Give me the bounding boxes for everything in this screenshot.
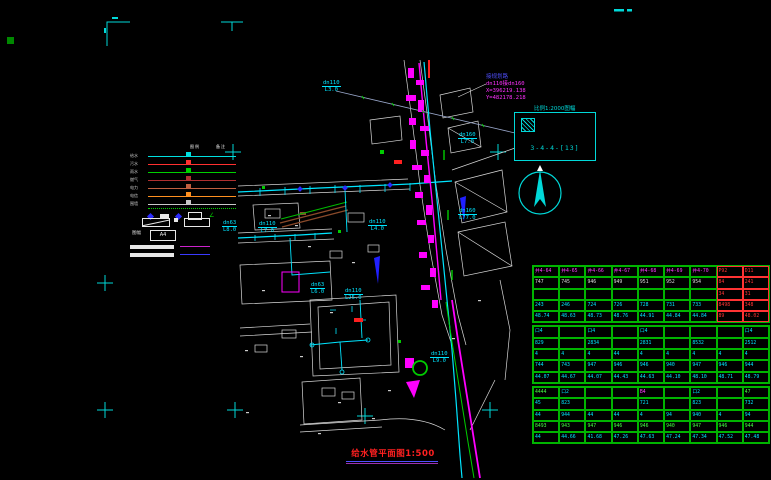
table-cell: 8493 [533, 421, 559, 432]
table-cell: 44 [533, 432, 559, 443]
table-cell: 井4-65 [559, 266, 585, 277]
table-cell: 2831 [638, 338, 664, 349]
legend-row-line [148, 188, 236, 189]
table-cell: 口4 [743, 326, 769, 337]
table-cell: 348 [743, 300, 769, 311]
table-cell: 944 [559, 410, 585, 421]
table-cell: 949 [612, 277, 638, 288]
square-icon [174, 218, 178, 222]
table-cell: 8498 [717, 300, 743, 311]
table-cell: 946 [612, 360, 638, 371]
table-cell [638, 289, 664, 300]
table-cell: 48.02 [743, 311, 769, 322]
rect-outline-icon [184, 218, 210, 227]
table-cell: 47.52 [717, 432, 743, 443]
table-cell: 246 [559, 300, 585, 311]
sheet-number: 3-4-4-[13] [515, 144, 595, 152]
sheet-number-box: 3-4-4-[13] [514, 112, 596, 161]
legend-row: 雨水 [128, 168, 240, 176]
legend-row: 燃气 [128, 176, 240, 184]
table-cell: 4 [638, 410, 664, 421]
annotation-coord-y: Y=482178.218 [486, 95, 526, 102]
pipe-label: dn110L4.0 [368, 219, 387, 232]
table-cell: 47.48 [743, 432, 769, 443]
table-cell: 823 [690, 398, 716, 409]
table-cell: 4 [533, 349, 559, 360]
scale-note: 比例1:2000图幅 [534, 104, 575, 112]
legend-bar [130, 245, 174, 249]
table-cell: 732 [743, 398, 769, 409]
table-cell [559, 289, 585, 300]
legend-row: 电信 [128, 192, 240, 200]
table-cell: 952 [664, 277, 690, 288]
connection-annotation: 接规划路 dn110接dn160 X=396219.138 Y=482178.2… [486, 74, 526, 102]
table-cell: 940 [690, 410, 716, 421]
legend-dotted-line [148, 208, 236, 209]
table-cell: 44.84 [690, 311, 716, 322]
table-cell: 41.68 [585, 432, 611, 443]
table-cell: 44.66 [559, 432, 585, 443]
table-cell: 44.67 [559, 372, 585, 383]
legend-row-label: 围墙 [130, 201, 138, 207]
table-cell: 946 [612, 421, 638, 432]
table-cell: 731 [664, 300, 690, 311]
green-band [281, 202, 347, 219]
table-cell: 4 [585, 349, 611, 360]
pipe-label: dn63L6.0 [310, 282, 325, 295]
table-cell: 4 [690, 349, 716, 360]
table-cell [690, 289, 716, 300]
table-cell [612, 326, 638, 337]
table-cell: 745 [559, 277, 585, 288]
pipe-label: dn160L77.0 [458, 208, 477, 221]
table-cell: 733 [690, 300, 716, 311]
table-cell: 45 [533, 398, 559, 409]
pipe-label: dn63L8.0 [222, 220, 237, 233]
table-cell: 47 [743, 387, 769, 398]
table-cell [612, 289, 638, 300]
table-cell: 947 [690, 421, 716, 432]
table-cell: 823 [559, 398, 585, 409]
annotation-road: 接规划路 [486, 74, 526, 81]
table-section: 口4口4口4口482928342831853225124444444444744… [532, 325, 770, 383]
table-cell: 34 [717, 289, 743, 300]
legend-row-label: 污水 [130, 161, 138, 167]
legend-row-label: 电力 [130, 185, 138, 191]
table-cell: 4 [559, 349, 585, 360]
pipe-label: dn110L3.0 [322, 80, 341, 93]
table-cell [664, 398, 690, 409]
table-cell [585, 289, 611, 300]
table-cell: 井4-64 [533, 266, 559, 277]
table-cell: 241 [743, 277, 769, 288]
table-cell: 井4-69 [664, 266, 690, 277]
table-cell [717, 387, 743, 398]
sewer-pipe-cluster [282, 63, 480, 478]
table-cell: 44.07 [585, 372, 611, 383]
table-cell [533, 289, 559, 300]
table-cell: 31 [743, 289, 769, 300]
table-cell [717, 398, 743, 409]
table-cell: 44.84 [664, 311, 690, 322]
table-cell: 947 [690, 360, 716, 371]
legend-row-line [148, 196, 236, 197]
table-cell: 48.63 [559, 311, 585, 322]
table-cell: 4 [638, 349, 664, 360]
table-cell: 8532 [690, 338, 716, 349]
cad-viewport: 图例 备注 给水污水雨水燃气电力电信围墙 ∠ 图幅 A4 接规划路 dn110接… [0, 0, 771, 480]
legend-row-line [148, 180, 236, 181]
table-cell: 2834 [585, 338, 611, 349]
table-cell: 48.74 [533, 311, 559, 322]
table-cell: D11 [743, 266, 769, 277]
pipe-label: dn110L9.0 [430, 351, 449, 364]
table-cell: 48.10 [690, 372, 716, 383]
table-cell: 744 [533, 360, 559, 371]
table-cell: 2512 [743, 338, 769, 349]
table-cell: 47.24 [664, 432, 690, 443]
legend-row-line [148, 164, 236, 165]
title-underline [346, 463, 438, 464]
table-cell: 井4-70 [690, 266, 716, 277]
north-arrow [519, 165, 561, 214]
table-cell [690, 326, 716, 337]
table-cell: 946 [638, 360, 664, 371]
plot-mark [7, 37, 14, 44]
table-cell: 947 [585, 360, 611, 371]
table-cell [664, 289, 690, 300]
table-cell: P92 [717, 266, 743, 277]
table-cell: 口4 [585, 326, 611, 337]
table-cell: 4444 [533, 387, 559, 398]
table-cell [612, 398, 638, 409]
drawing-title: 给水管平面图1:500 [345, 447, 441, 459]
table-cell: 94 [664, 410, 690, 421]
table-cell: 243 [533, 300, 559, 311]
table-cell: 951 [638, 277, 664, 288]
table-cell: B4 [638, 387, 664, 398]
table-cell [585, 387, 611, 398]
legend-col2-header: 备注 [216, 144, 226, 150]
legend-row-line [148, 204, 236, 205]
table-cell: 口2 [690, 387, 716, 398]
table-cell: 口2 [559, 387, 585, 398]
legend-row-mark [186, 200, 191, 204]
table-cell: 946 [717, 360, 743, 371]
table-cell: 947 [585, 421, 611, 432]
table-cell: 47.26 [612, 432, 638, 443]
table-cell: 48.73 [585, 311, 611, 322]
table-cell: 89 [717, 311, 743, 322]
table-cell: 940 [664, 421, 690, 432]
table-cell: 48.76 [612, 311, 638, 322]
legend-row-line [148, 172, 236, 173]
legend-row-mark [186, 192, 191, 196]
table-cell [612, 387, 638, 398]
legend-row-line [148, 156, 236, 157]
legend-row: 电力 [128, 184, 240, 192]
legend-col1-header: 图例 [190, 144, 200, 150]
hatched-square-icon [521, 118, 535, 132]
legend-bar [130, 253, 174, 257]
legend-row-mark [186, 168, 191, 172]
table-cell [664, 338, 690, 349]
legend-row: 给水 [128, 152, 240, 160]
table-cell: 4 [743, 349, 769, 360]
table-cell: 口4 [638, 326, 664, 337]
parallelogram-icon [142, 218, 170, 227]
table-cell: 44.07 [533, 372, 559, 383]
table-cell: 44.91 [638, 311, 664, 322]
annotation-pipe: dn110接dn160 [486, 81, 526, 88]
table-cell [717, 326, 743, 337]
table-cell: 747 [533, 277, 559, 288]
table-cell: 4 [664, 349, 690, 360]
table-cell: 84 [717, 277, 743, 288]
legend-row-mark [186, 160, 191, 164]
legend-row: 污水 [128, 160, 240, 168]
legend-row-label: 电信 [130, 193, 138, 199]
table-section: 井4-64井4-65井4-66井4-67井4-68井4-69井4-70P92D1… [532, 265, 770, 323]
legend-row-mark [186, 176, 191, 180]
parcel-outlines [238, 60, 515, 432]
annotation-coord-x: X=396219.138 [486, 88, 526, 95]
title-underline [346, 461, 438, 462]
table-cell: 944 [743, 360, 769, 371]
table-cell [585, 398, 611, 409]
pipe-label: dn110L25.0 [344, 288, 363, 301]
paper-size: A4 [150, 230, 176, 241]
table-cell [664, 326, 690, 337]
table-cell: 47.34 [690, 432, 716, 443]
table-cell: 44 [585, 410, 611, 421]
legend-magenta-line [180, 246, 210, 247]
table-cell: 44 [612, 410, 638, 421]
table-cell [717, 338, 743, 349]
legend-row-mark [186, 152, 191, 156]
table-cell: 94 [743, 410, 769, 421]
table-cell: 944 [743, 421, 769, 432]
legend-row-mark [186, 184, 191, 188]
table-cell: 井4-68 [638, 266, 664, 277]
table-cell: 726 [612, 300, 638, 311]
pipe-label: dn160L7.0 [458, 132, 477, 145]
table-cell [612, 338, 638, 349]
table-cell: 743 [559, 360, 585, 371]
table-cell: 4 [717, 410, 743, 421]
table-cell [559, 326, 585, 337]
paper-label: 图幅 [132, 230, 141, 236]
legend-row-label: 给水 [130, 153, 138, 159]
table-cell: 829 [533, 338, 559, 349]
table-cell: 井4-67 [612, 266, 638, 277]
table-cell: 井4-66 [585, 266, 611, 277]
table-cell: 44 [533, 410, 559, 421]
table-cell: 4 [717, 349, 743, 360]
legend-blue-line [180, 254, 210, 255]
legend-row-label: 燃气 [130, 177, 138, 183]
table-cell [559, 338, 585, 349]
table-cell: 口4 [533, 326, 559, 337]
annotation-leader [458, 84, 486, 97]
table-cell: 44.10 [664, 372, 690, 383]
table-cell: 943 [559, 421, 585, 432]
table-cell: 954 [690, 277, 716, 288]
table-cell: 946 [638, 421, 664, 432]
legend-row: 围墙 [128, 200, 240, 208]
table-cell: 48.79 [743, 372, 769, 383]
table-cell: 940 [664, 360, 690, 371]
table-cell: 47.63 [638, 432, 664, 443]
table-section: 4444口2B4口2474582372182373244944444449494… [532, 386, 770, 444]
table-cell: 728 [638, 300, 664, 311]
table-cell: 48.71 [717, 372, 743, 383]
table-cell: 724 [585, 300, 611, 311]
table-cell: 44.43 [612, 372, 638, 383]
table-cell: 44.63 [638, 372, 664, 383]
table-cell: 721 [638, 398, 664, 409]
pipe-data-table: 井4-64井4-65井4-66井4-67井4-68井4-69井4-70P92D1… [532, 265, 770, 446]
table-cell: 44 [612, 349, 638, 360]
legend-row-label: 雨水 [130, 169, 138, 175]
table-cell: 946 [717, 421, 743, 432]
pipe-label: dn110L7.0 [258, 221, 277, 234]
table-cell [664, 387, 690, 398]
table-cell: 946 [585, 277, 611, 288]
